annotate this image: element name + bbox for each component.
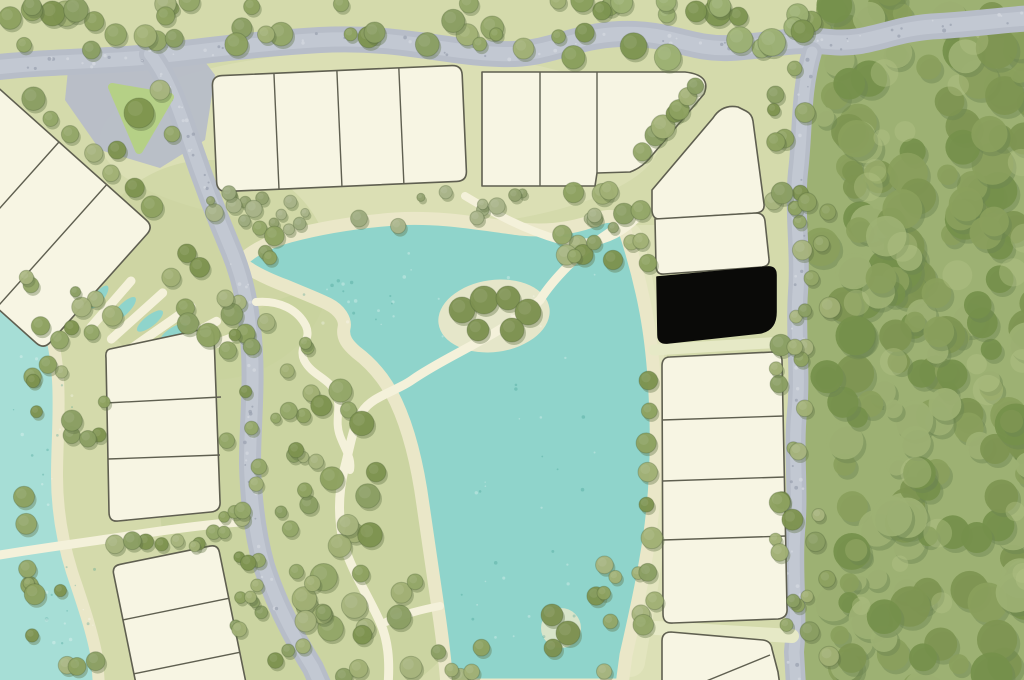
gravel-texture: [243, 441, 247, 445]
tree-highlight: [234, 20, 244, 30]
tree-highlight: [394, 584, 404, 594]
gravel-texture: [794, 275, 797, 278]
water-texture: [51, 478, 53, 480]
water-texture: [533, 295, 535, 297]
tree-highlight: [822, 206, 830, 214]
tree-highlight: [636, 616, 646, 626]
tree-highlight: [802, 591, 808, 597]
tree-highlight: [282, 404, 291, 413]
tree-highlight: [635, 145, 644, 154]
forest-canopy: [837, 643, 867, 673]
tree-highlight: [221, 434, 229, 442]
gravel-texture: [254, 518, 256, 520]
gravel-texture: [820, 38, 823, 41]
lot[interactable]: [662, 632, 780, 680]
tree-highlight: [797, 104, 807, 114]
tree-highlight: [24, 579, 30, 585]
tree-highlight: [392, 220, 400, 228]
tree-highlight: [270, 219, 275, 224]
tree-highlight: [18, 39, 25, 46]
tree-highlight: [105, 167, 113, 175]
tree-highlight: [137, 27, 148, 38]
forest-canopy: [838, 120, 875, 157]
tree-highlight: [788, 595, 795, 602]
water-texture: [59, 428, 61, 430]
tree-highlight: [235, 553, 240, 558]
tree-highlight: [224, 187, 231, 194]
gravel-texture: [846, 38, 848, 40]
water-texture: [541, 456, 543, 458]
tree-highlight: [332, 381, 344, 393]
tree-highlight: [605, 615, 612, 622]
tree-highlight: [441, 187, 448, 194]
tree-highlight: [230, 330, 236, 336]
tree-highlight: [66, 322, 73, 329]
tree-highlight: [731, 9, 740, 18]
water-texture: [66, 566, 68, 568]
forest-canopy: [872, 496, 912, 536]
tree-highlight: [219, 292, 228, 301]
tree-highlight: [479, 200, 484, 205]
gravel-texture: [444, 52, 446, 54]
tree-highlight: [32, 407, 38, 413]
water-texture: [582, 415, 586, 419]
forest-canopy: [949, 654, 969, 674]
gravel-texture: [251, 406, 253, 408]
tree-highlight: [800, 195, 809, 204]
water-texture: [31, 454, 34, 457]
tree-highlight: [606, 252, 616, 262]
water-texture: [337, 279, 340, 282]
tree-highlight: [27, 630, 34, 637]
tree-highlight: [153, 82, 163, 92]
lot[interactable]: [106, 329, 220, 521]
forest-light-patch: [967, 354, 987, 374]
water-texture: [41, 483, 43, 485]
tree-highlight: [43, 4, 55, 16]
forest-light-patch: [895, 121, 916, 142]
tree-highlight: [21, 272, 28, 279]
water-texture: [540, 507, 542, 509]
tree-highlight: [815, 237, 823, 245]
gravel-texture: [244, 464, 246, 466]
gravel-texture: [222, 47, 224, 49]
tree-highlight: [180, 315, 191, 326]
tree-highlight: [589, 210, 596, 217]
water-texture: [507, 276, 510, 279]
water-texture: [442, 335, 444, 337]
gravel-texture: [794, 283, 797, 286]
tree-highlight: [295, 589, 307, 601]
gravel-texture: [676, 38, 678, 40]
water-texture: [35, 357, 38, 360]
forest-light-patch: [873, 129, 890, 146]
tree-highlight: [658, 47, 671, 60]
gravel-texture: [942, 28, 946, 32]
tree-highlight: [85, 43, 94, 52]
tree-highlight: [265, 252, 272, 259]
tree-highlight: [64, 412, 75, 423]
forest-light-patch: [880, 348, 907, 375]
water-texture: [52, 641, 55, 644]
tree-highlight: [474, 39, 481, 46]
tree-highlight: [252, 580, 258, 586]
tree-highlight: [295, 218, 301, 224]
tree-highlight: [689, 79, 697, 87]
water-texture: [61, 384, 63, 386]
water-texture: [573, 614, 576, 617]
lot[interactable]: [662, 352, 787, 623]
selected-lot[interactable]: [657, 267, 776, 343]
gravel-texture: [66, 57, 69, 60]
tree-highlight: [353, 414, 365, 426]
water-texture: [87, 622, 90, 625]
water-texture: [380, 324, 382, 326]
water-texture: [64, 622, 66, 624]
water-texture: [594, 274, 596, 276]
tree-highlight: [773, 336, 784, 347]
tree-highlight: [821, 572, 829, 580]
water-texture: [13, 409, 14, 410]
tree-highlight: [785, 511, 796, 522]
tree-highlight: [565, 48, 577, 60]
tree-highlight: [345, 595, 358, 608]
tree-highlight: [782, 620, 789, 627]
tree-highlight: [53, 333, 62, 342]
water-texture: [594, 451, 596, 453]
tree-highlight: [285, 196, 292, 203]
gravel-texture: [942, 25, 944, 27]
gravel-texture: [203, 49, 207, 53]
water-texture: [461, 594, 463, 596]
tree-highlight: [792, 445, 801, 454]
gravel-texture: [575, 43, 577, 45]
gravel-texture: [932, 20, 934, 22]
tree-highlight: [553, 31, 560, 38]
tree-highlight: [452, 300, 465, 313]
tree-highlight: [74, 299, 84, 309]
tree-highlight: [156, 539, 163, 546]
tree-highlight: [110, 143, 119, 152]
forest-light-patch: [948, 75, 969, 96]
water-texture: [402, 275, 406, 279]
water-texture: [354, 299, 358, 303]
water-texture: [484, 481, 485, 482]
forest-light-patch: [852, 597, 870, 615]
tree-highlight: [245, 340, 253, 348]
forest-canopy: [836, 253, 872, 289]
tree-highlight: [472, 212, 479, 219]
gravel-texture: [790, 480, 793, 483]
water-texture: [494, 636, 497, 639]
tree-highlight: [297, 640, 304, 647]
gravel-texture: [301, 41, 304, 44]
gravel-texture: [807, 86, 809, 88]
lot[interactable]: [655, 213, 769, 274]
gravel-texture: [1006, 22, 1008, 24]
forest-canopy: [835, 316, 874, 355]
tree-highlight: [598, 558, 607, 567]
tree-highlight: [240, 216, 246, 222]
tree-highlight: [71, 288, 76, 293]
water-texture: [46, 449, 49, 452]
water-texture: [551, 550, 554, 553]
water-texture: [471, 618, 474, 621]
gravel-texture: [208, 181, 210, 183]
water-texture: [93, 568, 96, 571]
gravel-texture: [787, 661, 790, 664]
forest-canopy: [900, 426, 931, 457]
gravel-texture: [230, 263, 232, 265]
water-texture: [350, 281, 353, 284]
gravel-texture: [173, 53, 175, 55]
gravel-texture: [800, 270, 803, 273]
tree-highlight: [761, 31, 775, 45]
gravel-texture: [247, 416, 249, 418]
water-texture: [61, 642, 63, 644]
gravel-texture: [315, 32, 318, 35]
forest-canopy: [884, 400, 903, 419]
tree-highlight: [89, 293, 97, 301]
water-texture: [21, 433, 24, 436]
gravel-texture: [192, 132, 195, 135]
tree-highlight: [126, 533, 135, 542]
water-texture: [485, 485, 487, 487]
tree-highlight: [361, 525, 373, 537]
tree-highlight: [107, 26, 118, 37]
tree-highlight: [772, 377, 781, 386]
water-texture: [502, 577, 505, 580]
forest-canopy: [830, 626, 849, 645]
gravel-texture: [270, 578, 273, 581]
tree-highlight: [518, 302, 531, 315]
gravel-texture: [408, 40, 411, 43]
tree-highlight: [769, 135, 778, 144]
tree-highlight: [814, 510, 821, 517]
water-texture: [519, 418, 521, 420]
tree-highlight: [56, 586, 62, 592]
gravel-texture: [798, 134, 802, 138]
tree-highlight: [302, 209, 306, 213]
gravel-texture: [796, 387, 799, 390]
tree-highlight: [774, 184, 785, 195]
tree-highlight: [602, 183, 611, 192]
forest-canopy: [866, 263, 897, 294]
tree-highlight: [474, 289, 488, 303]
tree-highlight: [282, 365, 289, 372]
tree-highlight: [353, 212, 361, 220]
tree-highlight: [688, 3, 699, 14]
gravel-texture: [1000, 15, 1002, 17]
water-texture: [92, 625, 93, 626]
gravel-texture: [191, 149, 193, 151]
gravel-texture: [247, 284, 249, 286]
tree-highlight: [41, 358, 50, 367]
tree-highlight: [260, 28, 269, 37]
tree-highlight: [159, 9, 168, 18]
water-texture: [543, 635, 546, 638]
tree-highlight: [192, 259, 202, 269]
gravel-texture: [802, 487, 805, 490]
water-texture: [330, 284, 334, 288]
tree-highlight: [610, 572, 617, 579]
tree-highlight: [569, 251, 576, 258]
gravel-texture: [997, 13, 1001, 17]
tree-highlight: [769, 105, 775, 111]
gravel-texture: [192, 154, 195, 157]
forest-canopy: [909, 643, 937, 671]
forest-light-patch: [923, 519, 952, 548]
tree-highlight: [67, 0, 79, 12]
gravel-texture: [538, 53, 541, 56]
gravel-texture: [667, 34, 671, 38]
tree-highlight: [285, 225, 291, 231]
tree-highlight: [794, 22, 806, 34]
tree-highlight: [352, 661, 361, 670]
gravel-texture: [859, 35, 861, 37]
tree-highlight: [369, 464, 379, 474]
tree-highlight: [444, 12, 456, 24]
gravel-texture: [806, 58, 810, 62]
tree-highlight: [409, 575, 417, 583]
tree-highlight: [16, 488, 27, 499]
tree-highlight: [635, 235, 643, 243]
gravel-texture: [275, 607, 278, 610]
tree-highlight: [25, 89, 37, 101]
tree-highlight: [105, 308, 115, 318]
water-texture: [391, 303, 393, 305]
tree-highlight: [234, 623, 242, 631]
tree-highlight: [633, 202, 643, 212]
tree-highlight: [403, 658, 414, 669]
tree-highlight: [28, 375, 35, 382]
water-texture: [407, 252, 410, 255]
lot-block-east-column-selected: [657, 267, 776, 343]
gravel-texture: [897, 35, 900, 38]
tree-highlight: [260, 315, 269, 324]
forest-canopy: [867, 599, 902, 634]
gravel-texture: [794, 486, 798, 490]
tree-highlight: [644, 529, 655, 540]
water-texture: [45, 618, 49, 622]
gravel-texture: [446, 53, 449, 56]
tree-highlight: [641, 256, 650, 265]
tree-highlight: [730, 29, 743, 42]
tree-highlight: [254, 222, 261, 229]
gravel-texture: [187, 135, 190, 138]
tree-highlight: [236, 593, 242, 599]
tree-highlight: [200, 326, 212, 338]
gravel-texture: [92, 62, 96, 66]
forest-canopy: [979, 207, 1009, 237]
water-texture: [566, 563, 568, 565]
tree-highlight: [821, 648, 831, 658]
tree-highlight: [354, 567, 363, 576]
forest-light-patch: [887, 232, 917, 262]
gravel-texture: [797, 93, 799, 95]
tree-highlight: [671, 102, 681, 112]
gravel-texture: [124, 56, 127, 59]
tree-highlight: [87, 146, 96, 155]
tree-highlight: [291, 566, 298, 573]
tree-highlight: [808, 534, 818, 544]
forest-light-patch: [1006, 502, 1024, 521]
tree-highlight: [626, 236, 634, 244]
forest-canopy: [964, 291, 992, 319]
tree-highlight: [599, 588, 606, 595]
water-texture: [346, 320, 349, 323]
tree-highlight: [510, 190, 516, 196]
water-texture: [392, 315, 394, 317]
forest-canopy: [923, 317, 954, 348]
water-texture: [341, 282, 344, 285]
water-texture: [88, 618, 91, 621]
water-texture: [56, 434, 59, 437]
tree-highlight: [340, 517, 351, 528]
forest-canopy: [810, 360, 843, 393]
gravel-texture: [507, 57, 511, 61]
gravel-texture: [245, 286, 248, 289]
water-texture: [389, 295, 391, 297]
tree-highlight: [544, 606, 555, 617]
gravel-texture: [699, 41, 702, 44]
water-texture: [342, 290, 344, 292]
tree-highlight: [598, 665, 606, 673]
gravel-texture: [796, 584, 800, 588]
gravel-texture: [249, 301, 252, 304]
tree-highlight: [609, 223, 614, 228]
tree-highlight: [794, 187, 802, 195]
gravel-texture: [803, 235, 805, 237]
gravel-texture: [107, 56, 110, 59]
water-texture: [567, 582, 570, 585]
tree-highlight: [337, 670, 346, 679]
water-texture: [540, 325, 542, 327]
tree-highlight: [267, 228, 277, 238]
tree-highlight: [470, 321, 481, 332]
gravel-texture: [302, 39, 304, 41]
water-texture: [540, 416, 543, 419]
gravel-texture: [720, 43, 723, 46]
tree-highlight: [305, 386, 313, 394]
tree-highlight: [323, 469, 335, 481]
tree-highlight: [789, 6, 800, 17]
forest-canopy: [814, 107, 834, 127]
tree-highlight: [290, 444, 298, 452]
water-texture: [71, 394, 74, 397]
tree-highlight: [277, 210, 282, 215]
gravel-texture: [795, 399, 798, 402]
gravel-texture: [662, 40, 664, 42]
tree-highlight: [253, 460, 261, 468]
tree-highlight: [789, 63, 796, 70]
tree-highlight: [503, 320, 515, 332]
tree-highlight: [555, 227, 565, 237]
tree-highlight: [298, 613, 309, 624]
tree-highlight: [559, 623, 571, 635]
gravel-texture: [245, 452, 248, 455]
tree-highlight: [773, 545, 782, 554]
tree-highlight: [641, 565, 650, 574]
gravel-texture: [840, 48, 842, 50]
gravel-texture: [90, 65, 93, 68]
forest-canopy: [929, 388, 962, 421]
tree-highlight: [127, 180, 137, 190]
tree-highlight: [89, 654, 98, 663]
tree-highlight: [346, 29, 353, 36]
forest-canopy: [845, 539, 867, 561]
gravel-texture: [403, 36, 407, 40]
